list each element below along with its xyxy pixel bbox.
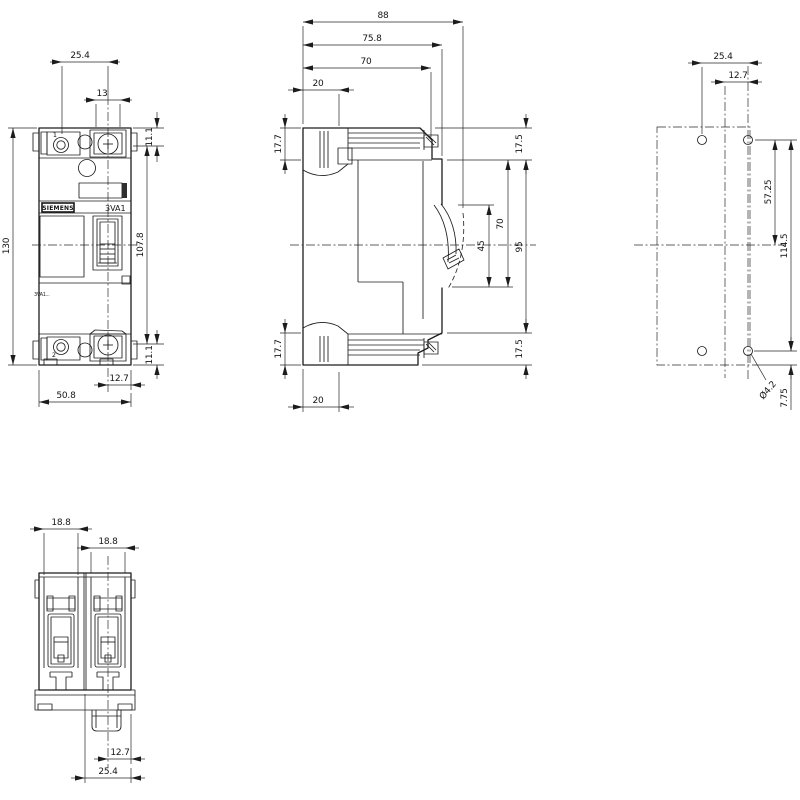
- svg-text:20: 20: [312, 79, 324, 89]
- brand-text: SIEMENS: [42, 205, 73, 212]
- svg-text:17.5: 17.5: [515, 339, 525, 358]
- svg-text:17.5: 17.5: [515, 134, 525, 153]
- svg-text:18.8: 18.8: [51, 518, 71, 528]
- technical-drawing-page: 1 SIEMENS 3VA1: [0, 0, 800, 800]
- pole-number-bottom: 2: [52, 351, 56, 359]
- svg-text:45: 45: [477, 240, 487, 251]
- svg-text:18.8: 18.8: [98, 537, 118, 547]
- svg-text:88: 88: [377, 11, 389, 21]
- svg-text:107.8: 107.8: [136, 232, 146, 257]
- svg-text:50.8: 50.8: [56, 391, 76, 401]
- svg-text:70: 70: [496, 218, 506, 230]
- svg-text:20: 20: [312, 396, 324, 406]
- svg-text:17.7: 17.7: [274, 134, 284, 153]
- svg-text:130: 130: [2, 237, 12, 254]
- svg-text:25.4: 25.4: [70, 51, 90, 61]
- svg-text:25.4: 25.4: [98, 767, 118, 777]
- pole-number-top: 1: [53, 131, 57, 139]
- svg-text:75.8: 75.8: [362, 34, 382, 44]
- svg-text:95: 95: [515, 241, 525, 252]
- svg-text:7.75: 7.75: [780, 388, 790, 407]
- svg-text:17.7: 17.7: [274, 339, 284, 358]
- svg-text:11.1: 11.1: [145, 127, 155, 146]
- dimension-drawing-canvas: 1 SIEMENS 3VA1: [0, 0, 800, 800]
- svg-text:13: 13: [96, 89, 107, 99]
- svg-text:57.25: 57.25: [764, 180, 774, 205]
- svg-text:25.4: 25.4: [713, 52, 733, 62]
- type-sublabel: 3VA1...: [34, 292, 50, 298]
- svg-text:70: 70: [360, 57, 372, 67]
- svg-text:12.7: 12.7: [728, 71, 747, 81]
- svg-text:12.7: 12.7: [110, 748, 129, 758]
- svg-text:12.7: 12.7: [109, 374, 128, 384]
- svg-text:114.5: 114.5: [780, 234, 790, 259]
- model-text: 3VA1: [105, 204, 126, 213]
- svg-text:11.1: 11.1: [145, 345, 155, 364]
